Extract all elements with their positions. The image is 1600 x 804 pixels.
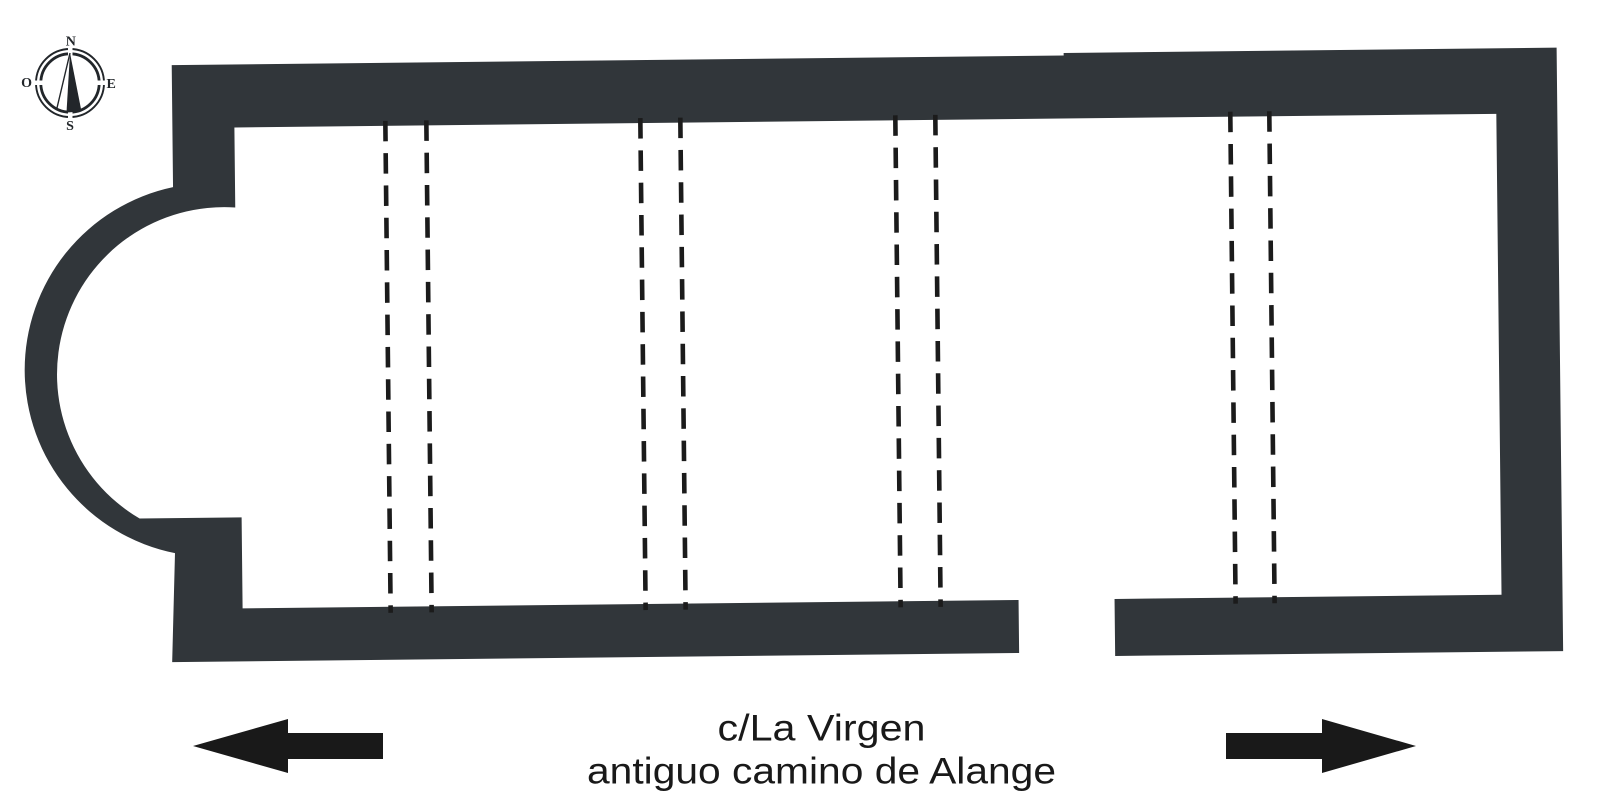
svg-text:S: S	[66, 119, 74, 134]
svg-text:E: E	[107, 77, 116, 92]
svg-text:antiguo camino de Alange: antiguo camino de Alange	[587, 751, 1056, 792]
svg-text:N: N	[66, 34, 76, 49]
svg-text:O: O	[21, 76, 32, 91]
svg-text:c/La Virgen: c/La Virgen	[718, 708, 926, 749]
